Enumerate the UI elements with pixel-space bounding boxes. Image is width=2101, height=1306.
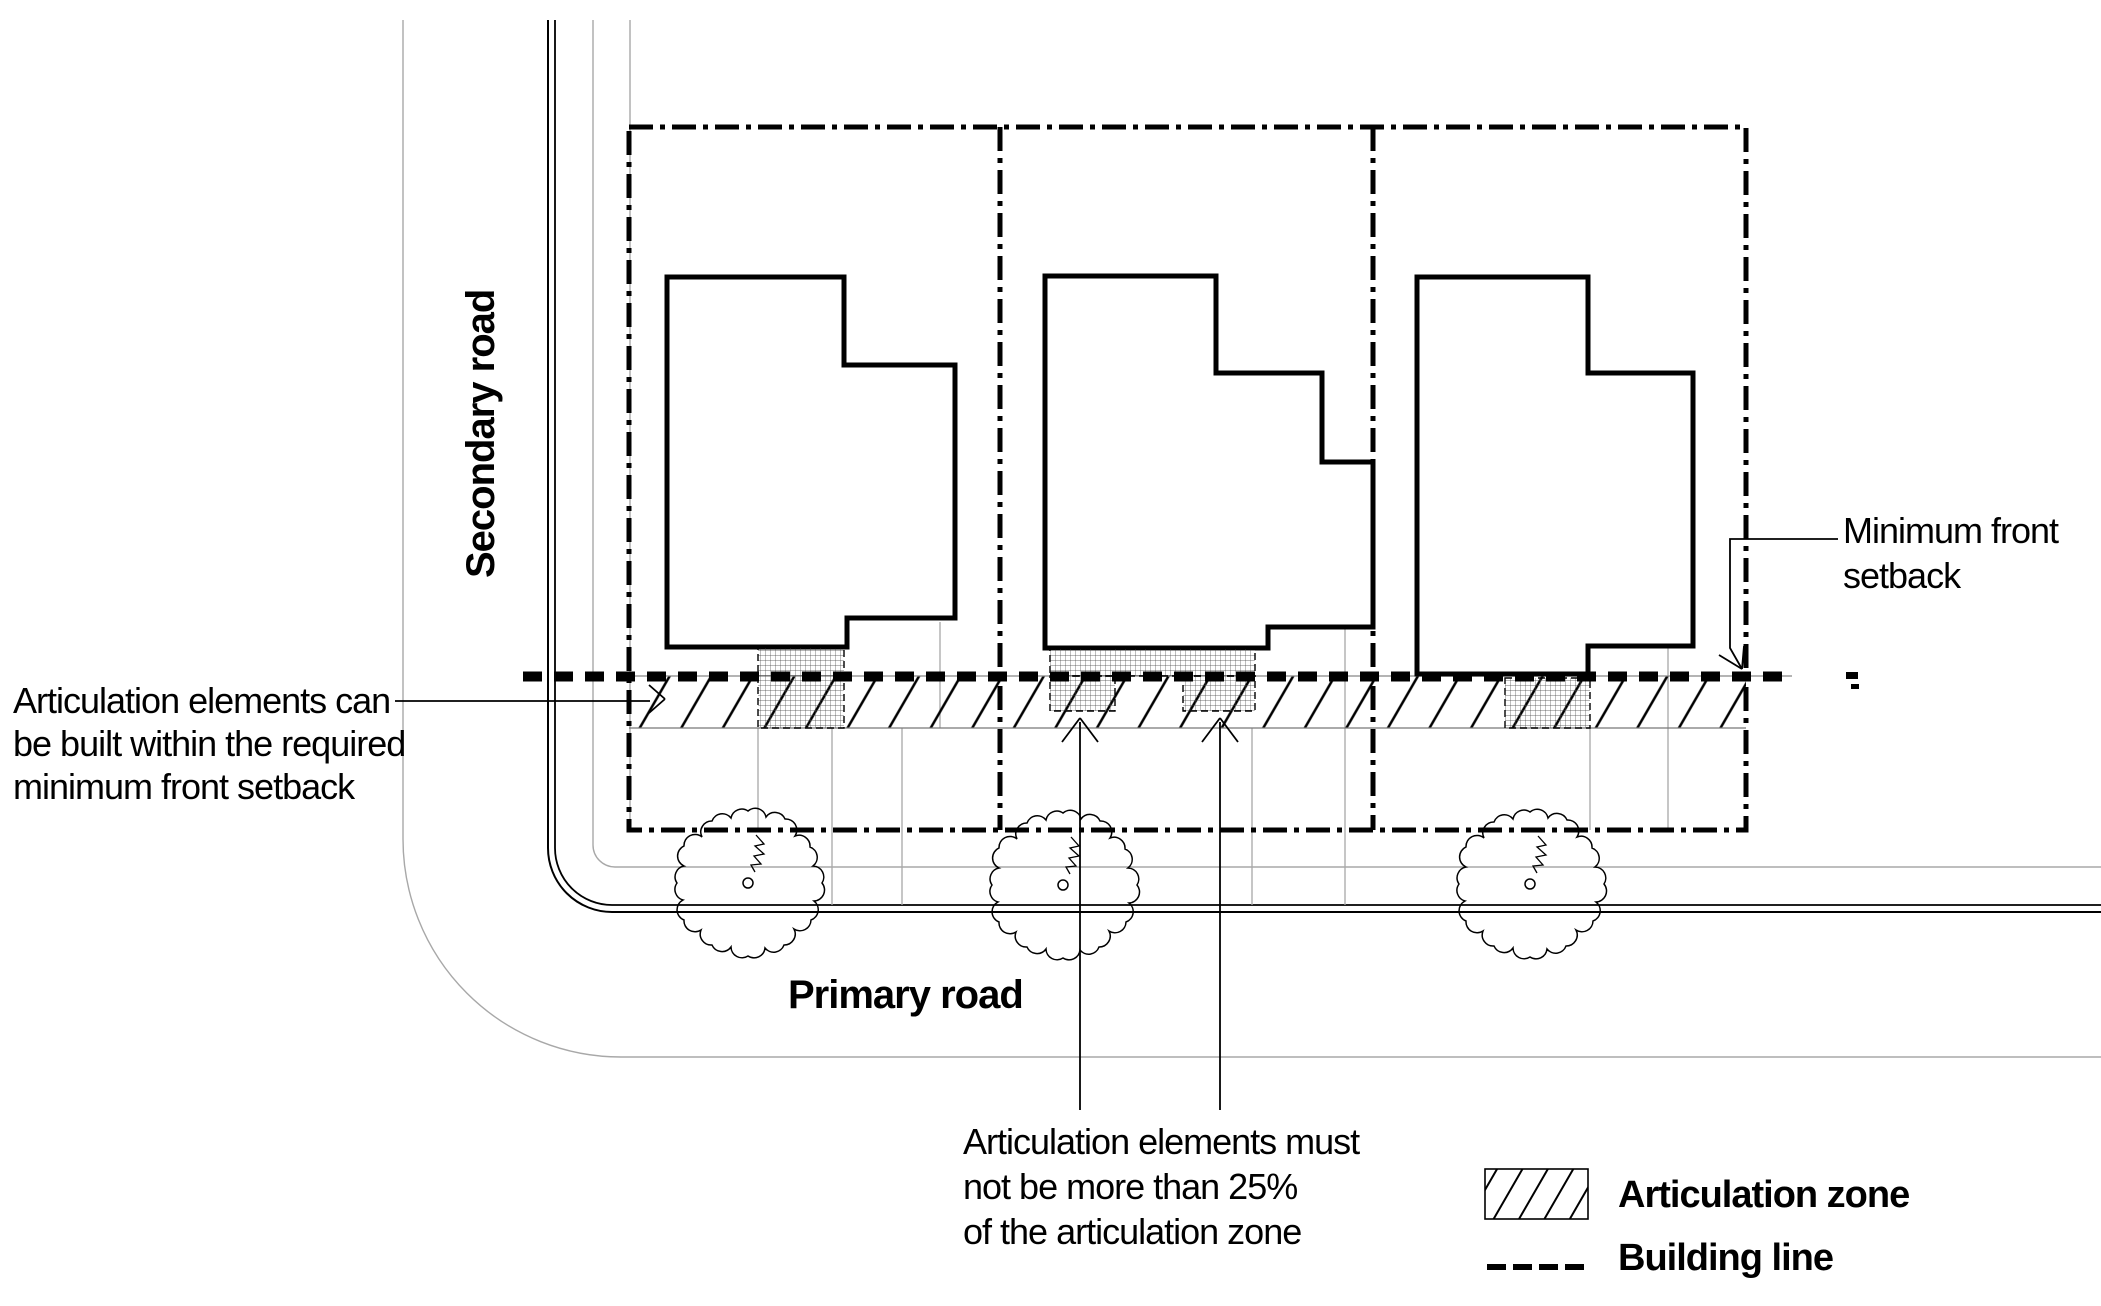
articulation-note-line-2: be built within the required [13,723,405,764]
articulation-limit-line-3: of the articulation zone [963,1211,1301,1252]
articulation-note: Articulation elements can be built withi… [13,680,405,807]
site-plan-figure: Secondary road Primary road Articulation… [0,0,2101,1306]
setback-note-line-1: Minimum front [1843,510,2059,551]
building-line-stray-dash-1 [1846,672,1858,679]
building-3 [1417,277,1693,674]
articulation-limit-line-1: Articulation elements must [963,1121,1360,1162]
legend-item-articulation-zone: Articulation zone [1485,1169,1909,1219]
tree-2 [990,810,1140,960]
legend-item-building-line: Building line [1487,1237,1833,1279]
legend: Articulation zone Building line [1485,1169,1909,1279]
articulation-element-lot3 [1505,678,1590,728]
articulation-limit-note: Articulation elements must not be more t… [963,1121,1360,1252]
articulation-note-line-1: Articulation elements can [13,680,390,721]
setback-note-line-2: setback [1843,555,1962,596]
articulation-element-lot1 [758,648,844,728]
primary-road-label: Primary road [788,973,1023,1017]
articulation-limit-line-2: not be more than 25% [963,1166,1297,1207]
buildings [667,276,1693,674]
articulation-zone-swatch [1485,1169,1588,1219]
setback-note: Minimum front setback [1843,510,2059,596]
building-2 [1045,276,1373,648]
legend-label-building-line: Building line [1618,1237,1833,1279]
articulation-note-line-3: minimum front setback [13,766,356,807]
building-1 [667,277,955,647]
legend-label-articulation-zone: Articulation zone [1618,1174,1909,1216]
building-line-stray-dash-2 [1851,684,1859,689]
site-plan-diagram: Secondary road Primary road Articulation… [0,0,2101,1306]
secondary-road-label: Secondary road [459,290,503,578]
